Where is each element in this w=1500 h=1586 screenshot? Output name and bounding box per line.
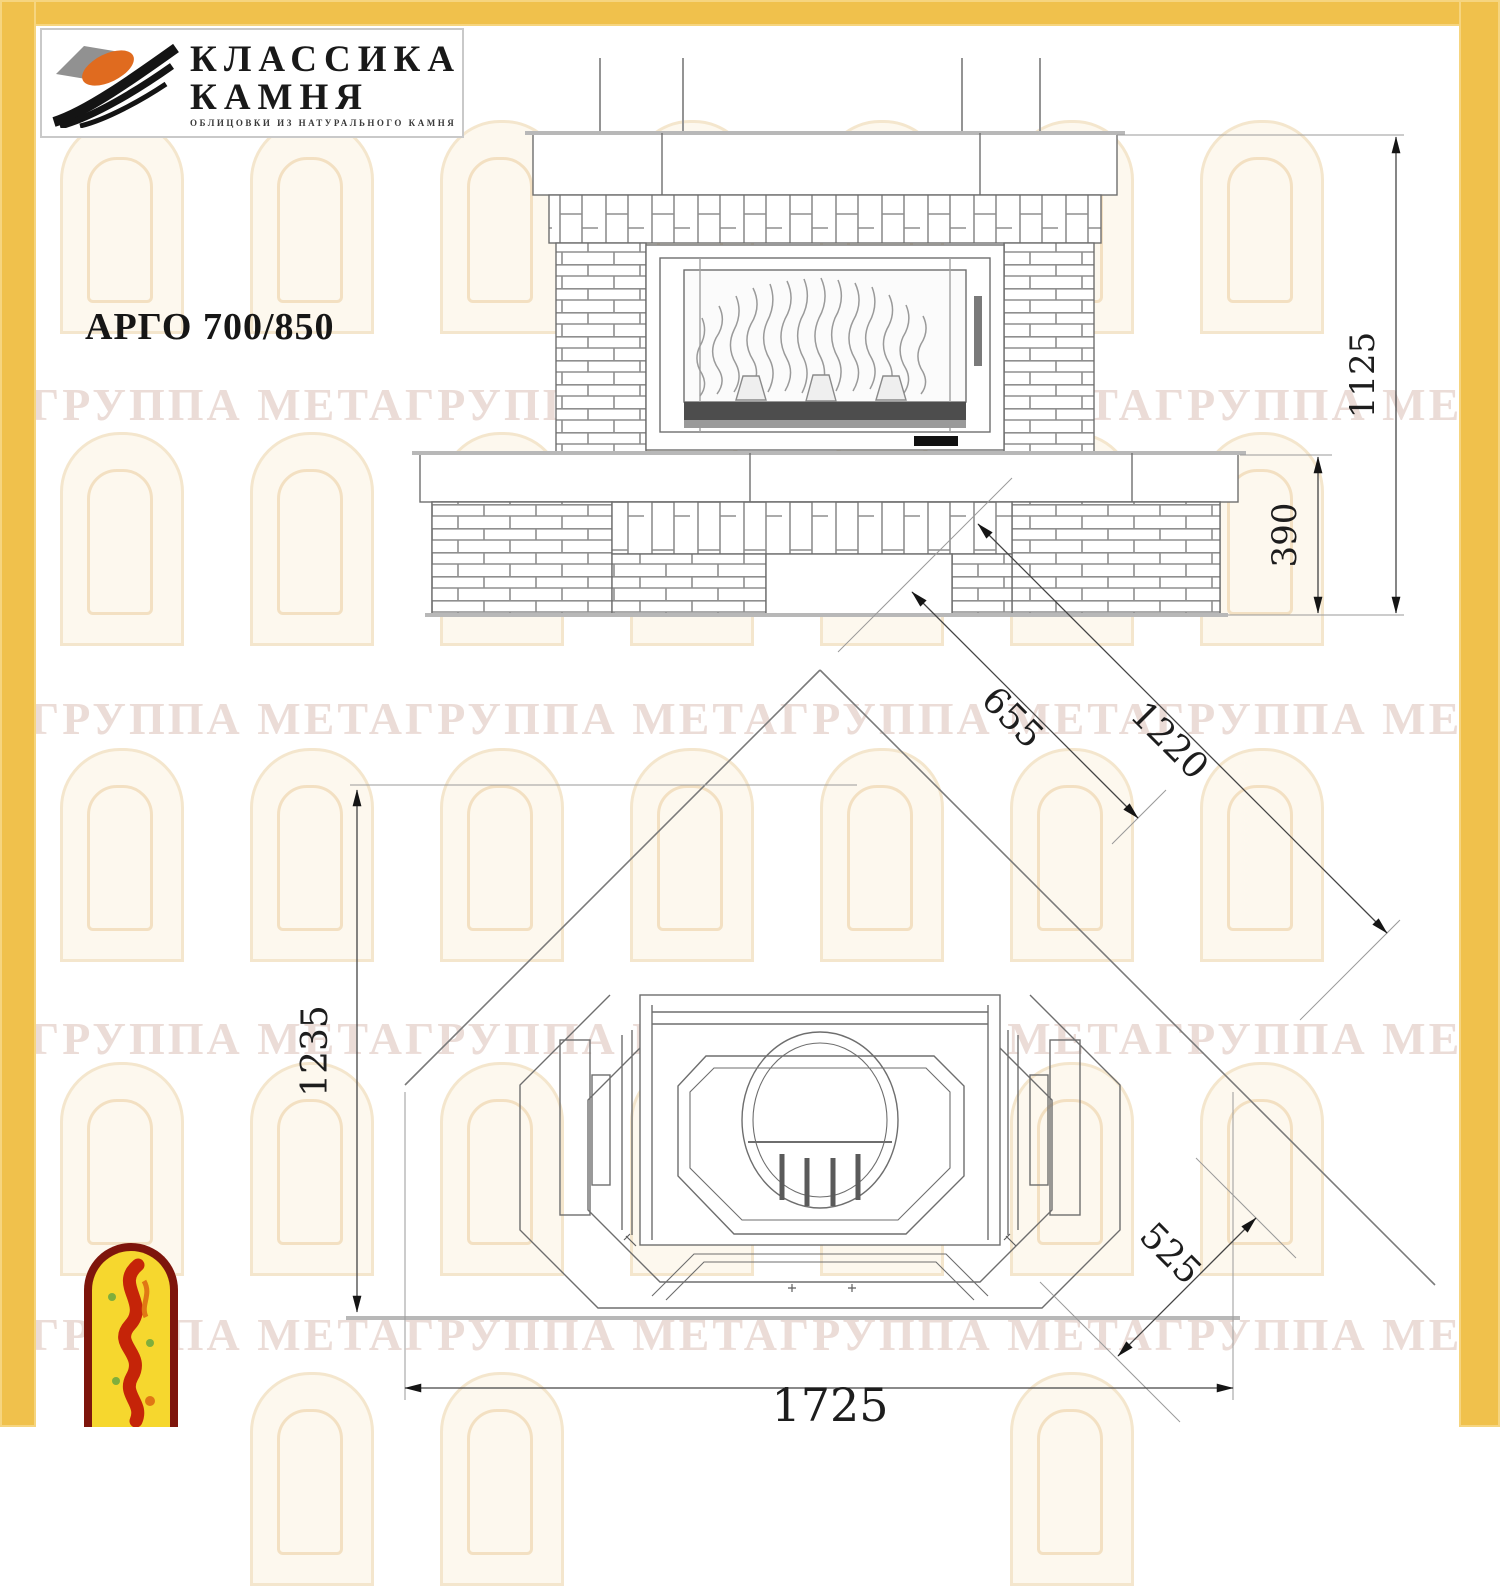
base-brick-right bbox=[1012, 502, 1220, 615]
plan-view bbox=[346, 670, 1435, 1318]
base-slat-band bbox=[612, 502, 1012, 554]
model-title: АРГО 700/850 bbox=[85, 305, 335, 349]
front-elevation bbox=[412, 58, 1246, 615]
frame-top bbox=[0, 0, 1500, 26]
insert-plan bbox=[560, 995, 1080, 1292]
logo-title-line1: КЛАССИКА bbox=[190, 38, 461, 81]
door-hinge bbox=[974, 296, 982, 366]
dim-total-height: 1125 bbox=[1343, 332, 1383, 419]
dim-total-width: 1725 bbox=[630, 1378, 1030, 1432]
technical-drawing: 1125 390 bbox=[0, 0, 1500, 1427]
page: { "logo": { "line1": "КЛАССИКА", "line2"… bbox=[0, 0, 1500, 1427]
wood-niche bbox=[766, 554, 952, 615]
base bbox=[425, 502, 1228, 615]
frame-left bbox=[0, 0, 36, 1427]
logo-box: КЛАССИКА КАМНЯ ОБЛИЦОВКИ ИЗ НАТУРАЛЬНОГО… bbox=[40, 28, 464, 138]
wing-left bbox=[560, 1030, 632, 1235]
fender-lines bbox=[652, 1254, 988, 1300]
dim-base-height: 390 bbox=[1265, 503, 1305, 568]
chimney-lines bbox=[600, 58, 1040, 133]
grate-strip bbox=[684, 402, 966, 420]
frame-right bbox=[1459, 0, 1500, 1427]
plan-dimensions: 1235 655 1220 525 bbox=[295, 478, 1400, 1422]
dim-diag-inner: 655 bbox=[973, 679, 1051, 757]
frieze-band bbox=[549, 195, 1101, 243]
dim-diag-outer: 1220 bbox=[1122, 694, 1216, 788]
firebird-icon bbox=[92, 1251, 172, 1427]
bench-slab bbox=[412, 453, 1246, 502]
meta-emblem bbox=[84, 1243, 178, 1427]
firebox bbox=[646, 245, 1004, 450]
brick-column-right bbox=[1004, 243, 1094, 453]
logo-title-line2: КАМНЯ bbox=[190, 76, 369, 119]
dim-corner-offset: 525 bbox=[1131, 1215, 1209, 1293]
wing-right bbox=[1008, 1030, 1080, 1235]
ash-handle bbox=[914, 436, 958, 446]
stone-logo-icon bbox=[50, 38, 182, 128]
brick-column-left bbox=[556, 243, 646, 453]
logo-subtitle: ОБЛИЦОВКИ ИЗ НАТУРАЛЬНОГО КАМНЯ bbox=[190, 118, 456, 128]
base-brick-left bbox=[432, 502, 612, 615]
dim-side-depth: 1235 bbox=[295, 1005, 336, 1097]
mantel-shelf bbox=[525, 133, 1125, 195]
